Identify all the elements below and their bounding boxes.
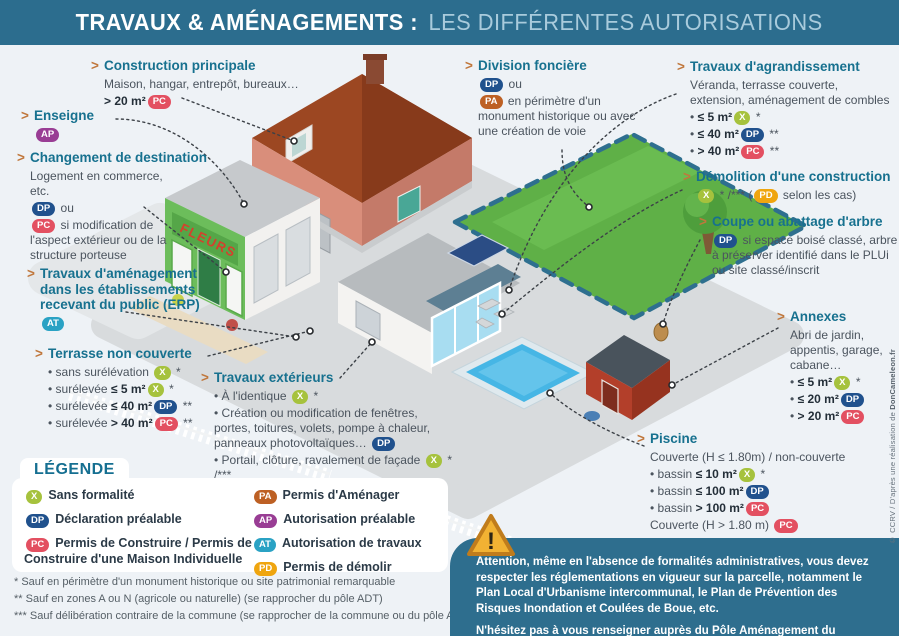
legend-item-label: Déclaration préalable: [55, 512, 181, 526]
callout-text: • Création ou modification de fenêtres, …: [214, 406, 430, 450]
callout-marker: >: [683, 169, 691, 185]
legend-item-AT: ATAutorisation de travaux: [252, 536, 444, 552]
callout-text: • bassin: [650, 501, 696, 515]
badge-X: X: [834, 376, 850, 390]
credit-text: © CCRV / D'après une réalisation de DonC…: [888, 349, 897, 544]
callout-line: AP: [34, 127, 124, 142]
callout-marker: >: [637, 431, 645, 447]
callout-title-construction-principale: >Construction principale: [104, 58, 369, 74]
callout-text: Abri de jardin, appentis, garage, cabane…: [790, 328, 883, 372]
callout-marker: >: [677, 59, 685, 75]
callout-text: **: [179, 399, 192, 413]
callout-title-coupe-abattage-arbre: >Coupe ou abattage d'arbre: [712, 214, 898, 230]
callout-marker: >: [201, 370, 209, 386]
badge-X: X: [148, 383, 164, 397]
badge-DP: DP: [480, 78, 503, 92]
callout-value: ≤ 40 m²: [698, 127, 739, 141]
badge-PC: PC: [774, 519, 797, 533]
badge-X: X: [698, 189, 714, 203]
callout-text: *: [166, 382, 174, 396]
callout-travaux-exterieurs: >Travaux extérieurs• À l'identique X *• …: [214, 370, 452, 483]
callout-line: X * /*** (PD selon les cas): [696, 188, 896, 203]
callout-line: • sans surélévation X *: [48, 365, 238, 380]
callout-text: • Portail, clôture, ravalement de façade: [214, 453, 424, 467]
legend-item-PA: PAPermis d'Aménager: [252, 488, 444, 504]
poster: TRAVAUX & AMÉNAGEMENTS : LES DIFFÉRENTES…: [0, 0, 899, 636]
legend-item-AP: APAutorisation préalable: [252, 512, 444, 528]
callout-line: Véranda, terrasse couverte, extension, a…: [690, 78, 895, 108]
callout-line: • Création ou modification de fenêtres, …: [214, 406, 452, 451]
legend-column-1: XSans formalitéDPDéclaration préalablePC…: [24, 488, 252, 584]
warning-text-2: N'hésitez pas à vous renseigner auprès d…: [476, 624, 881, 636]
callout-demolition-construction: >Démolition d'une constructionX * /*** (…: [696, 169, 896, 203]
callout-title-division-fonciere: >Division foncière: [478, 58, 636, 74]
svg-text:!: !: [487, 528, 495, 555]
callout-line: PC si modification de l'aspect extérieur…: [30, 218, 170, 263]
callout-line: • ≤ 5 m²X *: [790, 375, 894, 390]
badge-DP: DP: [372, 437, 395, 451]
callout-enseigne: >EnseigneAP: [34, 108, 124, 142]
badge-AP: AP: [36, 128, 59, 142]
callout-line: Logement en commerce, etc.: [30, 169, 170, 199]
callout-coupe-abattage-arbre: >Coupe ou abattage d'arbreDP si espace b…: [712, 214, 898, 278]
callout-text: * /*** (: [716, 188, 752, 202]
badge-DP: DP: [841, 393, 864, 407]
legend-item-label: Permis de Construire / Permis de Constru…: [24, 536, 252, 566]
callout-text: Logement en commerce, etc.: [30, 169, 163, 198]
badge-PA: PA: [254, 490, 277, 504]
callout-text: • À l'identique: [214, 389, 290, 403]
badge-X: X: [739, 468, 755, 482]
credit-brand: DonCameleon.fr: [888, 349, 897, 410]
callout-text: ou: [505, 77, 522, 91]
callout-text: selon les cas): [780, 188, 857, 202]
legend-item-label: Autorisation de travaux: [282, 536, 422, 550]
footnote-2: ** Sauf en zones A ou N (agricole ou nat…: [14, 591, 472, 608]
callout-marker: >: [17, 150, 25, 166]
badge-DP: DP: [32, 202, 55, 216]
callout-piscine: >PiscineCouverte (H ≤ 1.80m) / non-couve…: [650, 431, 882, 533]
callout-text: *: [310, 389, 318, 403]
callout-text: si espace boisé classé, arbre à préserve…: [712, 233, 897, 277]
callout-line: DP si espace boisé classé, arbre à prése…: [712, 233, 898, 278]
callout-text: **: [766, 144, 779, 158]
callout-line: Couverte (H ≤ 1.80m) / non-couverte: [650, 450, 882, 465]
callout-text: Couverte (H > 1.80 m): [650, 518, 772, 532]
callout-text: Véranda, terrasse couverte, extension, a…: [690, 78, 889, 107]
badge-AT: AT: [254, 538, 276, 552]
callout-text: • surélevée: [48, 382, 111, 396]
badge-AT: AT: [42, 317, 64, 331]
callout-line: • ≤ 5 m²X *: [690, 110, 895, 125]
callout-marker: >: [91, 58, 99, 74]
callout-changement-destination: >Changement de destinationLogement en co…: [30, 150, 222, 263]
callout-travaux-amenagement-erp: >Travaux d'aménagement dans les établiss…: [40, 266, 215, 331]
badge-PD: PD: [754, 189, 777, 203]
warning-box: Attention, même en l'absence de formalit…: [450, 538, 899, 636]
callout-line: • bassin ≤ 100 m²DP: [650, 484, 882, 499]
callout-text: • surélevée: [48, 399, 111, 413]
callout-line: DP ou: [478, 77, 636, 92]
callout-line: DP ou: [30, 201, 170, 216]
footnotes: * Sauf en périmètre d'un monument histor…: [14, 574, 472, 625]
callout-marker: >: [27, 266, 35, 282]
badge-PA: PA: [480, 95, 503, 109]
callout-text: • bassin: [650, 484, 696, 498]
callout-line: • ≤ 20 m²DP: [790, 392, 894, 407]
callout-division-fonciere: >Division foncièreDP ouPA en périmètre d…: [478, 58, 636, 139]
badge-X: X: [26, 490, 42, 504]
callout-line: • > 20 m²PC: [790, 409, 894, 424]
callout-text: •: [790, 392, 798, 406]
callout-value: ≤ 10 m²: [696, 467, 737, 481]
callout-value: ≤ 20 m²: [798, 392, 839, 406]
callout-text: Couverte (H ≤ 1.80m) / non-couverte: [650, 450, 845, 464]
callout-marker: >: [465, 58, 473, 74]
callout-text: • surélevée: [48, 416, 111, 430]
legend-item-X: XSans formalité: [24, 488, 252, 504]
warning-text-1: Attention, même en l'absence de formalit…: [476, 555, 881, 617]
callout-text: • bassin: [650, 467, 696, 481]
credit-prefix: © CCRV / D'après une réalisation de: [888, 409, 897, 544]
callout-title-piscine: >Piscine: [650, 431, 882, 447]
callout-text: •: [790, 409, 798, 423]
callout-travaux-agrandissement: >Travaux d'agrandissementVéranda, terras…: [690, 59, 895, 159]
callout-title-enseigne: >Enseigne: [34, 108, 124, 124]
badge-DP: DP: [741, 128, 764, 142]
badge-X: X: [734, 111, 750, 125]
callout-title-terrasse-non-couverte: >Terrasse non couverte: [48, 346, 238, 362]
callout-line: • À l'identique X *: [214, 389, 452, 404]
callout-value: > 40 m²: [111, 416, 153, 430]
badge-PC: PC: [148, 95, 171, 109]
callout-text: *: [173, 365, 181, 379]
callout-marker: >: [21, 108, 29, 124]
legend-title: LÉGENDE: [20, 458, 129, 481]
callout-value: ≤ 5 m²: [111, 382, 146, 396]
callout-text: •: [690, 144, 698, 158]
callout-title-demolition-construction: >Démolition d'une construction: [696, 169, 896, 185]
callout-text: *: [852, 375, 860, 389]
callout-text: ou: [57, 201, 74, 215]
callout-value: ≤ 5 m²: [698, 110, 733, 124]
callout-line: PA en périmètre d'un monument historique…: [478, 94, 636, 139]
callout-terrasse-non-couverte: >Terrasse non couverte• sans surélévatio…: [48, 346, 238, 431]
callout-line: • ≤ 40 m²DP **: [690, 127, 895, 142]
legend-item-DP: DPDéclaration préalable: [24, 512, 252, 528]
callout-text: •: [690, 110, 698, 124]
callout-title-travaux-agrandissement: >Travaux d'agrandissement: [690, 59, 895, 75]
legend-column-2: PAPermis d'AménagerAPAutorisation préala…: [252, 488, 444, 584]
callout-marker: >: [35, 346, 43, 362]
callout-text: **: [180, 416, 193, 430]
legend-items: XSans formalitéDPDéclaration préalablePC…: [24, 488, 444, 584]
callout-value: > 20 m²: [798, 409, 840, 423]
badge-PC: PC: [155, 417, 178, 431]
badge-PC: PC: [746, 502, 769, 516]
badge-DP: DP: [26, 514, 49, 528]
callout-marker: >: [699, 214, 707, 230]
callout-line: • surélevée ≤ 5 m²X *: [48, 382, 238, 397]
callout-title-travaux-amenagement-erp: >Travaux d'aménagement dans les établiss…: [40, 266, 215, 313]
warning-icon: !: [466, 512, 516, 558]
callout-value: ≤ 40 m²: [111, 399, 152, 413]
badge-PC: PC: [741, 145, 764, 159]
badge-X: X: [154, 366, 170, 380]
callout-text: •: [790, 375, 798, 389]
badge-AP: AP: [254, 514, 277, 528]
callout-value: ≤ 5 m²: [798, 375, 833, 389]
callout-text: *: [752, 110, 760, 124]
callout-title-changement-destination: >Changement de destination: [30, 150, 222, 166]
callout-text: •: [690, 127, 698, 141]
callout-line: • > 40 m²PC **: [690, 144, 895, 159]
callout-line: • bassin ≤ 10 m²X *: [650, 467, 882, 482]
callout-line: Abri de jardin, appentis, garage, cabane…: [790, 328, 894, 373]
callout-line: • surélevée > 40 m²PC **: [48, 416, 238, 431]
badge-DP: DP: [714, 234, 737, 248]
badge-DP: DP: [154, 400, 177, 414]
badge-PC: PC: [841, 410, 864, 424]
callout-value: > 100 m²: [696, 501, 744, 515]
footnote-3: *** Sauf délibération contraire de la co…: [14, 608, 472, 625]
badge-DP: DP: [746, 485, 769, 499]
callout-marker: >: [777, 309, 785, 325]
callout-line: Maison, hangar, entrepôt, bureaux…: [104, 77, 369, 92]
callout-value: > 40 m²: [698, 144, 740, 158]
callout-line: Couverte (H > 1.80 m) PC: [650, 518, 882, 533]
callout-construction-principale: >Construction principaleMaison, hangar, …: [104, 58, 369, 109]
callout-line: > 20 m²PC: [104, 94, 369, 109]
callout-value: ≤ 100 m²: [696, 484, 744, 498]
legend-item-label: Autorisation préalable: [283, 512, 415, 526]
callout-text: • sans surélévation: [48, 365, 152, 379]
callout-text: Maison, hangar, entrepôt, bureaux…: [104, 77, 299, 91]
callout-title-annexes: >Annexes: [790, 309, 894, 325]
legend-item-label: Permis de démolir: [283, 560, 391, 574]
callout-line: • bassin > 100 m²PC: [650, 501, 882, 516]
legend-item-label: Sans formalité: [48, 488, 134, 502]
callout-line: • surélevée ≤ 40 m²DP **: [48, 399, 238, 414]
callout-annexes: >AnnexesAbri de jardin, appentis, garage…: [790, 309, 894, 424]
badge-PC: PC: [32, 219, 55, 233]
legend-item-PC: PCPermis de Construire / Permis de Const…: [24, 536, 252, 567]
badge-X: X: [426, 454, 442, 468]
callout-title-travaux-exterieurs: >Travaux extérieurs: [214, 370, 452, 386]
footnote-1: * Sauf en périmètre d'un monument histor…: [14, 574, 472, 591]
callout-text: **: [766, 127, 779, 141]
callout-line: AT: [40, 316, 215, 331]
callout-text: *: [757, 467, 765, 481]
legend-item-label: Permis d'Aménager: [283, 488, 400, 502]
badge-PC: PC: [26, 538, 49, 552]
callout-value: > 20 m²: [104, 94, 146, 108]
badge-X: X: [292, 390, 308, 404]
